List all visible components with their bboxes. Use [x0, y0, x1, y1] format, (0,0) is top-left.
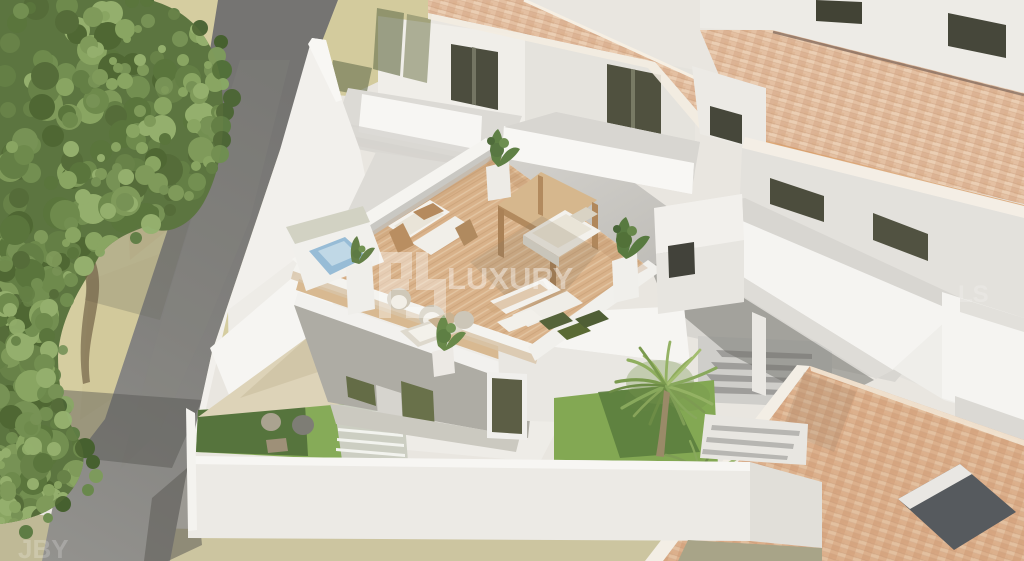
svg-text:JBY: JBY [18, 534, 69, 561]
svg-text:LS: LS [958, 281, 989, 308]
svg-text:LUXURY: LUXURY [447, 261, 574, 296]
